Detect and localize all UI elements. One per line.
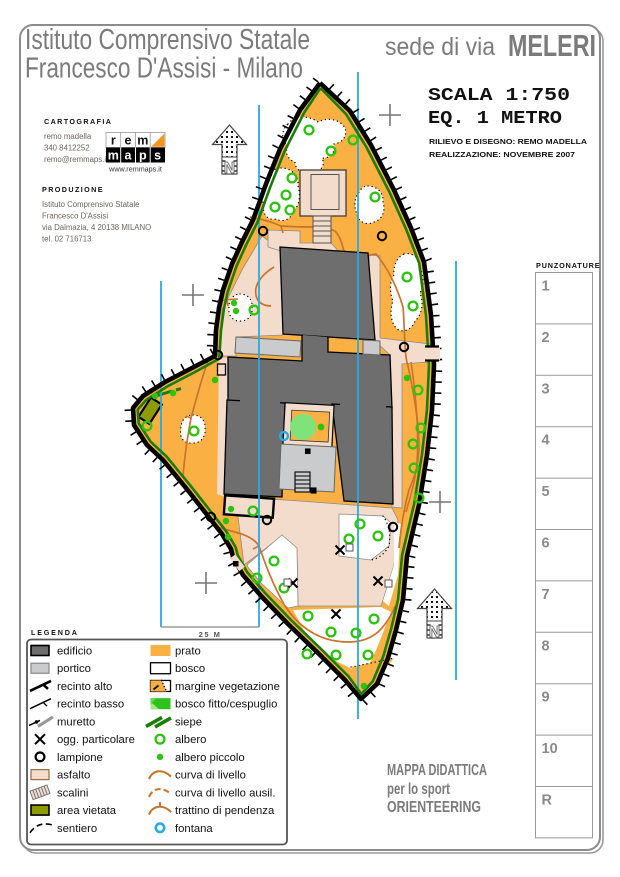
svg-text:trattino di pendenza: trattino di pendenza [175, 805, 275, 817]
svg-text:CARTOGRAFIA: CARTOGRAFIA [44, 117, 112, 126]
svg-text:bosco: bosco [175, 663, 205, 675]
svg-text:sentiero: sentiero [57, 823, 97, 835]
svg-text:Francesco D'Assisi: Francesco D'Assisi [42, 212, 108, 221]
svg-text:RILIEVO E DISEGNO: REMO MADELL: RILIEVO E DISEGNO: REMO MADELLA [429, 137, 588, 146]
svg-text:Francesco D'Assisi - Milano: Francesco D'Assisi - Milano [25, 53, 303, 85]
svg-text:LEGENDA: LEGENDA [31, 628, 79, 637]
svg-text:portico: portico [57, 663, 91, 675]
svg-text:REALIZZAZIONE: NOVEMBRE 2007: REALIZZAZIONE: NOVEMBRE 2007 [429, 150, 575, 159]
svg-text:9: 9 [542, 690, 550, 706]
svg-text:a: a [125, 148, 133, 162]
svg-text:25 M: 25 M [199, 630, 222, 639]
svg-text:e: e [125, 134, 132, 148]
svg-text:8: 8 [542, 638, 550, 654]
svg-text:margine vegetazione: margine vegetazione [175, 681, 280, 693]
svg-text:Istituto Comprensivo Statale: Istituto Comprensivo Statale [42, 200, 140, 209]
svg-text:via Dalmazia, 4 20138 MILANO: via Dalmazia, 4 20138 MILANO [42, 223, 151, 232]
svg-text:curva di livello ausil.: curva di livello ausil. [175, 787, 275, 799]
svg-text:albero piccolo: albero piccolo [175, 752, 245, 764]
svg-text:PUNZONATURE: PUNZONATURE [536, 261, 600, 270]
svg-text:remo madella: remo madella [44, 132, 92, 141]
svg-text:asfalto: asfalto [57, 770, 90, 782]
svg-text:340 8412252: 340 8412252 [44, 144, 90, 153]
svg-text:remo@remmaps.it: remo@remmaps.it [44, 155, 109, 164]
svg-text:EQ. 1 METRO: EQ. 1 METRO [428, 109, 562, 129]
svg-text:per lo sport: per lo sport [387, 781, 450, 798]
svg-text:curva di livello: curva di livello [175, 770, 246, 782]
svg-text:tel. 02 716713: tel. 02 716713 [42, 235, 91, 244]
svg-text:PRODUZIONE: PRODUZIONE [42, 185, 104, 194]
svg-text:muretto: muretto [57, 716, 95, 728]
svg-text:6: 6 [542, 536, 550, 552]
svg-text:4: 4 [542, 433, 550, 449]
svg-text:3: 3 [542, 381, 550, 397]
svg-text:s: s [154, 148, 161, 162]
svg-text:10: 10 [542, 741, 558, 757]
svg-text:m: m [137, 134, 148, 148]
svg-text:R: R [542, 793, 553, 809]
svg-text:fontana: fontana [175, 823, 213, 835]
svg-text:bosco fitto/cespuglio: bosco fitto/cespuglio [175, 699, 277, 711]
svg-text:5: 5 [542, 484, 550, 500]
svg-text:edificio: edificio [57, 646, 92, 658]
svg-text:sede di via: sede di via [385, 33, 495, 61]
svg-text:2: 2 [542, 330, 550, 346]
svg-text:SCALA 1:750: SCALA 1:750 [428, 86, 570, 106]
svg-text:1: 1 [542, 279, 550, 295]
svg-text:area vietata: area vietata [57, 805, 117, 817]
svg-text:scalini: scalini [57, 787, 88, 799]
svg-text:ogg. particolare: ogg. particolare [57, 734, 135, 746]
svg-text:N: N [224, 160, 235, 177]
svg-text:recinto basso: recinto basso [57, 699, 124, 711]
svg-text:www.remmaps.it: www.remmaps.it [108, 165, 162, 174]
svg-text:MAPPA DIDATTICA: MAPPA DIDATTICA [387, 762, 487, 779]
svg-text:r: r [111, 134, 116, 148]
svg-text:recinto alto: recinto alto [57, 681, 112, 693]
svg-text:prato: prato [175, 646, 201, 658]
svg-text:Istituto Comprensivo Statale: Istituto Comprensivo Statale [25, 24, 310, 56]
svg-text:p: p [139, 148, 147, 162]
svg-text:7: 7 [542, 587, 550, 603]
svg-text:siepe: siepe [175, 716, 202, 728]
svg-text:MELERI: MELERI [508, 28, 596, 63]
svg-text:N: N [429, 624, 440, 641]
svg-text:m: m [108, 148, 119, 162]
svg-text:lampione: lampione [57, 752, 103, 764]
svg-text:ORIENTEERING: ORIENTEERING [387, 799, 481, 816]
svg-text:albero: albero [175, 734, 206, 746]
